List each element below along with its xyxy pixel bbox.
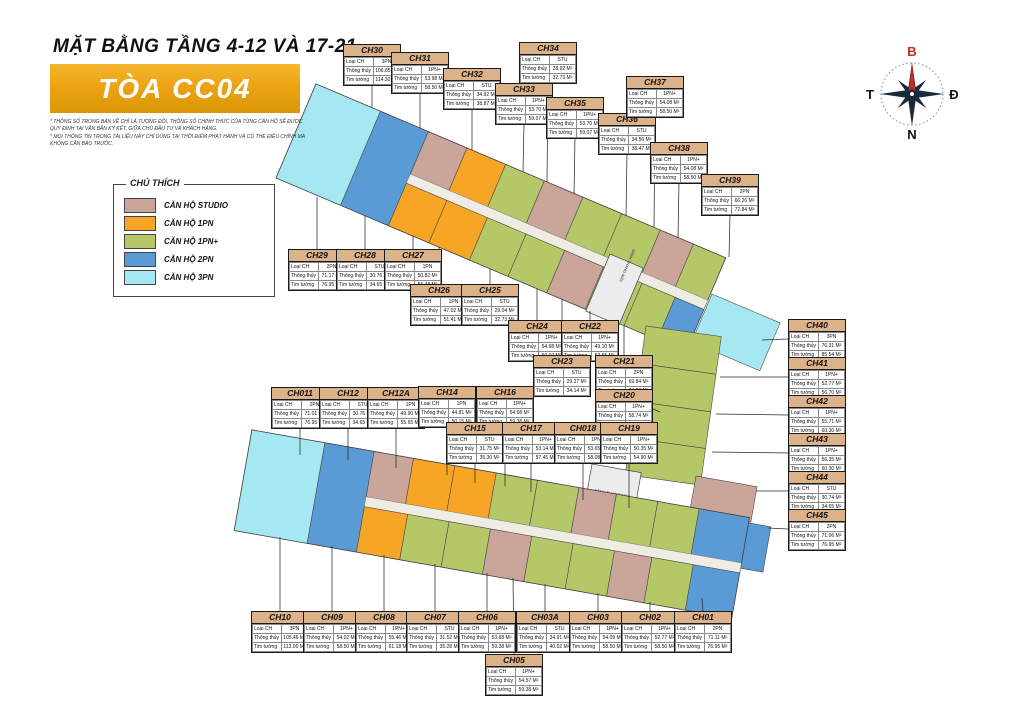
row-label-type: Loại CH bbox=[420, 400, 449, 409]
unit-carpet-area: 54.08 M² bbox=[681, 165, 707, 174]
row-label-gross-area: Tim tường bbox=[556, 454, 585, 463]
unit-carpet-area: 50.35 M² bbox=[631, 445, 657, 454]
compass-north-label: B bbox=[907, 44, 916, 59]
unit-carpet-area: 50.82 M² bbox=[415, 272, 441, 281]
row-label-type: Loại CH bbox=[535, 369, 564, 378]
legend-item-1pn: CĂN HỘ 1PN bbox=[124, 216, 266, 231]
row-label-carpet-area: Thông thủy bbox=[386, 272, 415, 281]
unit-gross-area: 58.50 M² bbox=[657, 108, 683, 117]
row-label-gross-area: Tim tường bbox=[445, 100, 474, 109]
row-label-type: Loại CH bbox=[790, 333, 819, 342]
unit-type: 1PN+ bbox=[657, 90, 683, 99]
unit-callout-ch23: CH23 Loại CH STU Thông thủy 29.27 M² Tim… bbox=[533, 355, 591, 397]
unit-callout-ch43: CH43 Loại CH 1PN+ Thông thủy 56.35 M² Ti… bbox=[788, 433, 846, 475]
row-label-type: Loại CH bbox=[548, 111, 577, 120]
unit-callout-ch34: CH34 Loại CH STU Thông thủy 28.92 M² Tim… bbox=[519, 42, 577, 84]
row-label-gross-area: Tim tường bbox=[600, 145, 629, 154]
row-label-gross-area: Tim tường bbox=[487, 686, 516, 695]
row-label-type: Loại CH bbox=[571, 625, 600, 634]
unit-id: CH19 bbox=[601, 423, 657, 435]
unit-id: CH26 bbox=[411, 285, 467, 297]
row-label-carpet-area: Thông thủy bbox=[652, 165, 681, 174]
row-label-carpet-area: Thông thủy bbox=[290, 272, 319, 281]
unit-id: CH10 bbox=[252, 612, 308, 624]
row-label-carpet-area: Thông thủy bbox=[602, 445, 631, 454]
row-label-carpet-area: Thông thủy bbox=[478, 409, 507, 418]
row-label-gross-area: Tim tường bbox=[497, 115, 526, 124]
row-label-type: Loại CH bbox=[676, 625, 705, 634]
legend-item-1pn-plus: CĂN HỘ 1PN+ bbox=[124, 234, 266, 249]
unit-callout-ch31: CH31 Loại CH 1PN+ Thông thủy 53.98 M² Ti… bbox=[391, 52, 449, 94]
row-label-gross-area: Tim tường bbox=[521, 74, 550, 83]
row-label-gross-area: Tim tường bbox=[623, 643, 652, 652]
row-label-type: Loại CH bbox=[602, 436, 631, 445]
legend-title: CHÚ THÍCH bbox=[126, 178, 184, 188]
unit-id: CH20 bbox=[596, 390, 652, 402]
row-label-carpet-area: Thông thủy bbox=[790, 494, 819, 503]
unit-callout-ch06: CH06 Loại CH 1PN+ Thông thủy 53.68 M² Ti… bbox=[458, 611, 516, 653]
unit-id: CH38 bbox=[651, 143, 707, 155]
row-label-carpet-area: Thông thủy bbox=[305, 634, 334, 643]
unit-id: CH24 bbox=[509, 321, 565, 333]
row-label-type: Loại CH bbox=[556, 436, 585, 445]
unit-gross-area: 54.90 M² bbox=[631, 454, 657, 463]
unit-id: CH06 bbox=[459, 612, 515, 624]
row-label-carpet-area: Thông thủy bbox=[393, 75, 422, 84]
row-label-type: Loại CH bbox=[448, 436, 477, 445]
unit-carpet-area: 29.04 M² bbox=[492, 307, 518, 316]
row-label-type: Loại CH bbox=[253, 625, 282, 634]
row-label-carpet-area: Thông thủy bbox=[412, 307, 441, 316]
row-label-gross-area: Tim tường bbox=[535, 387, 564, 396]
unit-id: CH21 bbox=[596, 356, 652, 368]
unit-callout-ch03a: CH03A Loại CH STU Thông thủy 34.91 M² Ti… bbox=[516, 611, 574, 653]
unit-callout-ch19: CH19 Loại CH 1PN+ Thông thủy 50.35 M² Ti… bbox=[600, 422, 658, 464]
compass-rose: B Đ N T bbox=[862, 42, 962, 142]
unit-type: STU bbox=[564, 369, 590, 378]
row-label-carpet-area: Thông thủy bbox=[600, 136, 629, 145]
unit-type: 1PN+ bbox=[819, 409, 845, 418]
row-label-carpet-area: Thông thủy bbox=[463, 307, 492, 316]
legend-swatch-1pn bbox=[124, 216, 156, 231]
unit-id: CH02 bbox=[622, 612, 678, 624]
unit-type: 2PN bbox=[732, 188, 758, 197]
unit-carpet-area: 69.84 M² bbox=[626, 378, 652, 387]
unit-id: CH03A bbox=[517, 612, 573, 624]
unit-callout-ch39: CH39 Loại CH 2PN Thông thủy 66.26 M² Tim… bbox=[701, 174, 759, 216]
unit-type: 1PN bbox=[415, 263, 441, 272]
unit-id: CH05 bbox=[486, 655, 542, 667]
row-label-gross-area: Tim tường bbox=[412, 316, 441, 325]
unit-id: CH40 bbox=[789, 320, 845, 332]
legend-swatch-3pn bbox=[124, 270, 156, 285]
legend-swatch-2pn bbox=[124, 252, 156, 267]
unit-carpet-area: 54.57 M² bbox=[516, 677, 542, 686]
unit-type: 2PN bbox=[819, 523, 845, 532]
row-label-gross-area: Tim tường bbox=[602, 454, 631, 463]
page-title: MẶT BẰNG TẦNG 4-12 VÀ 17-21 bbox=[53, 36, 357, 58]
unit-type: 1PN+ bbox=[819, 447, 845, 456]
row-label-type: Loại CH bbox=[628, 90, 657, 99]
unit-gross-area: 76.95 M² bbox=[705, 643, 731, 652]
legend-item-2pn: CĂN HỘ 2PN bbox=[124, 252, 266, 267]
unit-id: CH01 bbox=[675, 612, 731, 624]
unit-id: CH15 bbox=[447, 423, 503, 435]
row-label-carpet-area: Thông thủy bbox=[338, 272, 367, 281]
row-label-gross-area: Tim tường bbox=[703, 206, 732, 215]
unit-id: CH23 bbox=[534, 356, 590, 368]
unit-type: 3PN bbox=[819, 333, 845, 342]
legend-swatch-studio bbox=[124, 198, 156, 213]
unit-id: CH07 bbox=[407, 612, 463, 624]
row-label-type: Loại CH bbox=[273, 401, 302, 410]
unit-callout-ch40: CH40 Loại CH 3PN Thông thủy 76.31 M² Tim… bbox=[788, 319, 846, 361]
row-label-type: Loại CH bbox=[338, 263, 367, 272]
row-label-type: Loại CH bbox=[790, 371, 819, 380]
unit-carpet-area: 66.26 M² bbox=[732, 197, 758, 206]
row-label-gross-area: Tim tường bbox=[338, 281, 367, 290]
row-label-gross-area: Tim tường bbox=[548, 129, 577, 138]
unit-id: CH09 bbox=[304, 612, 360, 624]
unit-gross-area: 76.95 M² bbox=[819, 541, 845, 550]
row-label-gross-area: Tim tường bbox=[321, 419, 350, 428]
legend-label: CĂN HỘ 3PN bbox=[164, 273, 213, 282]
unit-gross-area: 32.73 M² bbox=[550, 74, 576, 83]
unit-type: 1PN+ bbox=[489, 625, 515, 634]
unit-carpet-area: 28.92 M² bbox=[550, 65, 576, 74]
compass-needle-north bbox=[909, 62, 916, 92]
row-label-carpet-area: Thông thủy bbox=[535, 378, 564, 387]
row-label-carpet-area: Thông thủy bbox=[448, 445, 477, 454]
unit-id: CH22 bbox=[562, 321, 618, 333]
row-label-carpet-area: Thông thủy bbox=[790, 418, 819, 427]
unit-callout-ch42: CH42 Loại CH 1PN+ Thông thủy 55.71 M² Ti… bbox=[788, 395, 846, 437]
floor-plan-page: { "header": { "title": "MẶT BẰNG TẦNG 4-… bbox=[0, 0, 1024, 724]
row-label-carpet-area: Thông thủy bbox=[518, 634, 547, 643]
row-label-carpet-area: Thông thủy bbox=[408, 634, 437, 643]
row-label-carpet-area: Thông thủy bbox=[623, 634, 652, 643]
row-label-type: Loại CH bbox=[597, 403, 626, 412]
row-label-type: Loại CH bbox=[790, 485, 819, 494]
row-label-carpet-area: Thông thủy bbox=[556, 445, 585, 454]
row-label-carpet-area: Thông thủy bbox=[345, 67, 374, 76]
unit-type: 1PN+ bbox=[626, 403, 652, 412]
compass-south-label: N bbox=[907, 127, 916, 142]
unit-id: CH39 bbox=[702, 175, 758, 187]
unit-type: 2PN bbox=[626, 369, 652, 378]
row-label-type: Loại CH bbox=[463, 298, 492, 307]
row-label-type: Loại CH bbox=[518, 625, 547, 634]
row-label-carpet-area: Thông thủy bbox=[563, 343, 592, 352]
row-label-type: Loại CH bbox=[487, 668, 516, 677]
unit-carpet-area: 71.11 M² bbox=[705, 634, 731, 643]
row-label-carpet-area: Thông thủy bbox=[790, 342, 819, 351]
row-label-carpet-area: Thông thủy bbox=[510, 343, 539, 352]
unit-callout-ch44: CH44 Loại CH STU Thông thủy 30.74 M² Tim… bbox=[788, 471, 846, 513]
unit-id: CH32 bbox=[444, 69, 500, 81]
row-label-carpet-area: Thông thủy bbox=[321, 410, 350, 419]
unit-id: CH44 bbox=[789, 472, 845, 484]
row-label-type: Loại CH bbox=[369, 401, 398, 410]
legend-item-3pn: CĂN HỘ 3PN bbox=[124, 270, 266, 285]
legend-item-studio: CĂN HỘ STUDIO bbox=[124, 198, 266, 213]
row-label-type: Loại CH bbox=[305, 625, 334, 634]
unit-id: CH34 bbox=[520, 43, 576, 55]
unit-carpet-area: 53.68 M² bbox=[489, 634, 515, 643]
unit-carpet-area: 54.08 M² bbox=[657, 99, 683, 108]
legend-label: CĂN HỘ 1PN bbox=[164, 219, 213, 228]
row-label-type: Loại CH bbox=[790, 447, 819, 456]
row-label-gross-area: Tim tường bbox=[393, 84, 422, 93]
row-label-gross-area: Tim tường bbox=[463, 316, 492, 325]
legend-label: CĂN HỘ STUDIO bbox=[164, 201, 228, 210]
row-label-carpet-area: Thông thủy bbox=[597, 378, 626, 387]
unit-gross-area: 59.38 M² bbox=[516, 686, 542, 695]
row-label-type: Loại CH bbox=[321, 401, 350, 410]
row-label-carpet-area: Thông thủy bbox=[369, 410, 398, 419]
unit-id: CH35 bbox=[547, 98, 603, 110]
row-label-carpet-area: Thông thủy bbox=[273, 410, 302, 419]
unit-carpet-area: 71.06 M² bbox=[819, 532, 845, 541]
unit-id: CH27 bbox=[385, 250, 441, 262]
unit-type: 2PN bbox=[705, 625, 731, 634]
row-label-type: Loại CH bbox=[790, 523, 819, 532]
unit-type: 1PN+ bbox=[516, 668, 542, 677]
row-label-type: Loại CH bbox=[600, 127, 629, 136]
unit-gross-area: 72.84 M² bbox=[732, 206, 758, 215]
unit-callout-ch33: CH33 Loại CH 1PN+ Thông thủy 53.70 M² Ti… bbox=[495, 83, 553, 125]
unit-type: 1PN bbox=[449, 400, 475, 409]
unit-type: STU bbox=[492, 298, 518, 307]
row-label-gross-area: Tim tường bbox=[676, 643, 705, 652]
row-label-carpet-area: Thông thủy bbox=[703, 197, 732, 206]
unit-callout-ch02: CH02 Loại CH 1PN+ Thông thủy 52.77 M² Ti… bbox=[621, 611, 679, 653]
unit-id: CH45 bbox=[789, 510, 845, 522]
unit-callout-ch37: CH37 Loại CH 1PN+ Thông thủy 54.08 M² Ti… bbox=[626, 76, 684, 118]
unit-gross-area: 35.30 M² bbox=[477, 454, 503, 463]
disclaimer-line-2: * MỌI THÔNG TIN TRONG TÀI LIỆU NÀY CHỈ D… bbox=[50, 134, 312, 147]
unit-id: CH43 bbox=[789, 434, 845, 446]
unit-callout-ch03: CH03 Loại CH 1PN+ Thông thủy 54.09 M² Ti… bbox=[569, 611, 627, 653]
unit-type: STU bbox=[629, 127, 655, 136]
unit-callout-ch15: CH15 Loại CH STU Thông thủy 31.75 M² Tim… bbox=[446, 422, 504, 464]
row-label-gross-area: Tim tường bbox=[790, 541, 819, 550]
row-label-gross-area: Tim tường bbox=[448, 454, 477, 463]
legend-label: CĂN HỘ 1PN+ bbox=[164, 237, 218, 246]
row-label-gross-area: Tim tường bbox=[345, 76, 374, 85]
unit-type: 1PN+ bbox=[631, 436, 657, 445]
row-label-type: Loại CH bbox=[408, 625, 437, 634]
row-label-type: Loại CH bbox=[790, 409, 819, 418]
unit-callout-ch12a: CH12A Loại CH 1PN Thông thủy 49.90 M² Ti… bbox=[367, 387, 425, 429]
unit-carpet-area: 54.68 M² bbox=[507, 409, 533, 418]
row-label-carpet-area: Thông thủy bbox=[420, 409, 449, 418]
row-label-type: Loại CH bbox=[290, 263, 319, 272]
unit-gross-area: 59.38 M² bbox=[489, 643, 515, 652]
unit-carpet-area: 58.74 M² bbox=[626, 412, 652, 421]
row-label-type: Loại CH bbox=[345, 58, 374, 67]
unit-type: 1PN+ bbox=[592, 334, 618, 343]
row-label-gross-area: Tim tường bbox=[460, 643, 489, 652]
unit-carpet-area: 30.74 M² bbox=[819, 494, 845, 503]
unit-callout-ch05: CH05 Loại CH 1PN+ Thông thủy 54.57 M² Ti… bbox=[485, 654, 543, 696]
unit-id: CH25 bbox=[462, 285, 518, 297]
row-label-gross-area: Tim tường bbox=[504, 454, 533, 463]
row-label-type: Loại CH bbox=[510, 334, 539, 343]
row-label-carpet-area: Thông thủy bbox=[253, 634, 282, 643]
row-label-carpet-area: Thông thủy bbox=[676, 634, 705, 643]
row-label-carpet-area: Thông thủy bbox=[571, 634, 600, 643]
row-label-carpet-area: Thông thủy bbox=[497, 106, 526, 115]
unit-id: CH12A bbox=[368, 388, 424, 400]
unit-callout-ch41: CH41 Loại CH 1PN+ Thông thủy 52.77 M² Ti… bbox=[788, 357, 846, 399]
unit-callout-ch17: CH17 Loại CH 1PN+ Thông thủy 53.14 M² Ti… bbox=[502, 422, 560, 464]
unit-id: CH37 bbox=[627, 77, 683, 89]
row-label-type: Loại CH bbox=[357, 625, 386, 634]
row-label-carpet-area: Thông thủy bbox=[357, 634, 386, 643]
row-label-type: Loại CH bbox=[703, 188, 732, 197]
unit-carpet-area: 49.10 M² bbox=[592, 343, 618, 352]
row-label-carpet-area: Thông thủy bbox=[504, 445, 533, 454]
row-label-gross-area: Tim tường bbox=[369, 419, 398, 428]
disclaimer-line-1: * THÔNG SỐ TRONG BẢN VẼ CHỈ LÀ TƯƠNG ĐỐI… bbox=[50, 119, 312, 132]
row-label-type: Loại CH bbox=[597, 369, 626, 378]
legend-swatch-1pn-plus bbox=[124, 234, 156, 249]
unit-callout-ch09: CH09 Loại CH 1PN+ Thông thủy 54.02 M² Ti… bbox=[303, 611, 361, 653]
legend-label: CĂN HỘ 2PN bbox=[164, 255, 213, 264]
row-label-gross-area: Tim tường bbox=[571, 643, 600, 652]
unit-carpet-area: 52.77 M² bbox=[819, 380, 845, 389]
row-label-gross-area: Tim tường bbox=[408, 643, 437, 652]
tower-name: TÒA CC04 bbox=[98, 73, 251, 105]
unit-carpet-area: 44.81 M² bbox=[449, 409, 475, 418]
row-label-type: Loại CH bbox=[504, 436, 533, 445]
row-label-type: Loại CH bbox=[412, 298, 441, 307]
row-label-carpet-area: Thông thủy bbox=[548, 120, 577, 129]
unit-callout-ch01: CH01 Loại CH 2PN Thông thủy 71.11 M² Tim… bbox=[674, 611, 732, 653]
row-label-type: Loại CH bbox=[445, 82, 474, 91]
unit-carpet-area: 55.71 M² bbox=[819, 418, 845, 427]
unit-type: 1PN+ bbox=[681, 156, 707, 165]
row-label-carpet-area: Thông thủy bbox=[790, 380, 819, 389]
row-label-type: Loại CH bbox=[478, 400, 507, 409]
disclaimer: * THÔNG SỐ TRONG BẢN VẼ CHỈ LÀ TƯƠNG ĐỐI… bbox=[50, 119, 312, 149]
unit-callout-ch45: CH45 Loại CH 2PN Thông thủy 71.06 M² Tim… bbox=[788, 509, 846, 551]
row-label-type: Loại CH bbox=[386, 263, 415, 272]
row-label-carpet-area: Thông thủy bbox=[487, 677, 516, 686]
row-label-gross-area: Tim tường bbox=[253, 643, 282, 652]
unit-carpet-area: 29.27 M² bbox=[564, 378, 590, 387]
unit-id: CH42 bbox=[789, 396, 845, 408]
row-label-type: Loại CH bbox=[460, 625, 489, 634]
unit-id: CH41 bbox=[789, 358, 845, 370]
unit-callout-ch26: CH26 Loại CH 1PN Thông thủy 47.02 M² Tim… bbox=[410, 284, 468, 326]
legend: CHÚ THÍCH CĂN HỘ STUDIO CĂN HỘ 1PN CĂN H… bbox=[113, 184, 275, 297]
unit-carpet-area: 76.31 M² bbox=[819, 342, 845, 351]
unit-id: CH17 bbox=[503, 423, 559, 435]
unit-type: STU bbox=[550, 56, 576, 65]
row-label-gross-area: Tim tường bbox=[273, 419, 302, 428]
unit-carpet-area: 31.75 M² bbox=[477, 445, 503, 454]
row-label-carpet-area: Thông thủy bbox=[521, 65, 550, 74]
compass-east-label: Đ bbox=[949, 87, 958, 102]
unit-callout-ch35: CH35 Loại CH 1PN+ Thông thủy 53.70 M² Ti… bbox=[546, 97, 604, 139]
unit-gross-area: 34.14 M² bbox=[564, 387, 590, 396]
row-label-carpet-area: Thông thủy bbox=[460, 634, 489, 643]
unit-callout-ch36: CH36 Loại CH STU Thông thủy 34.56 M² Tim… bbox=[598, 113, 656, 155]
unit-callout-ch08: CH08 Loại CH 1PN+ Thông thủy 55.46 M² Ti… bbox=[355, 611, 413, 653]
unit-carpet-area: 56.35 M² bbox=[819, 456, 845, 465]
compass-west-label: T bbox=[866, 87, 874, 102]
unit-id: CH33 bbox=[496, 84, 552, 96]
row-label-carpet-area: Thông thủy bbox=[445, 91, 474, 100]
row-label-carpet-area: Thông thủy bbox=[597, 412, 626, 421]
unit-type: STU bbox=[819, 485, 845, 494]
unit-type: STU bbox=[477, 436, 503, 445]
row-label-gross-area: Tim tường bbox=[652, 174, 681, 183]
row-label-gross-area: Tim tường bbox=[628, 108, 657, 117]
row-label-gross-area: Tim tường bbox=[357, 643, 386, 652]
unit-callout-ch38: CH38 Loại CH 1PN+ Thông thủy 54.08 M² Ti… bbox=[650, 142, 708, 184]
unit-type: 1PN+ bbox=[507, 400, 533, 409]
row-label-gross-area: Tim tường bbox=[518, 643, 547, 652]
unit-id: CH08 bbox=[356, 612, 412, 624]
unit-callout-ch32: CH32 Loại CH STU Thông thủy 34.92 M² Tim… bbox=[443, 68, 501, 110]
row-label-type: Loại CH bbox=[652, 156, 681, 165]
row-label-type: Loại CH bbox=[521, 56, 550, 65]
unit-id: CH16 bbox=[477, 387, 533, 399]
row-label-carpet-area: Thông thủy bbox=[628, 99, 657, 108]
row-label-gross-area: Tim tường bbox=[305, 643, 334, 652]
unit-callout-ch10: CH10 Loại CH 3PN Thông thủy 105.46 M² Ti… bbox=[251, 611, 309, 653]
row-label-gross-area: Tim tường bbox=[290, 281, 319, 290]
unit-id: CH31 bbox=[392, 53, 448, 65]
row-label-gross-area: Tim tường bbox=[420, 418, 449, 427]
unit-id: CH14 bbox=[419, 387, 475, 399]
row-label-type: Loại CH bbox=[497, 97, 526, 106]
row-label-type: Loại CH bbox=[393, 66, 422, 75]
row-label-type: Loại CH bbox=[623, 625, 652, 634]
row-label-carpet-area: Thông thủy bbox=[790, 456, 819, 465]
row-label-carpet-area: Thông thủy bbox=[790, 532, 819, 541]
unit-type: 1PN+ bbox=[819, 371, 845, 380]
unit-callout-ch07: CH07 Loại CH STU Thông thủy 31.52 M² Tim… bbox=[406, 611, 464, 653]
row-label-type: Loại CH bbox=[563, 334, 592, 343]
tower-name-banner: TÒA CC04 bbox=[50, 64, 300, 113]
unit-id: CH03 bbox=[570, 612, 626, 624]
